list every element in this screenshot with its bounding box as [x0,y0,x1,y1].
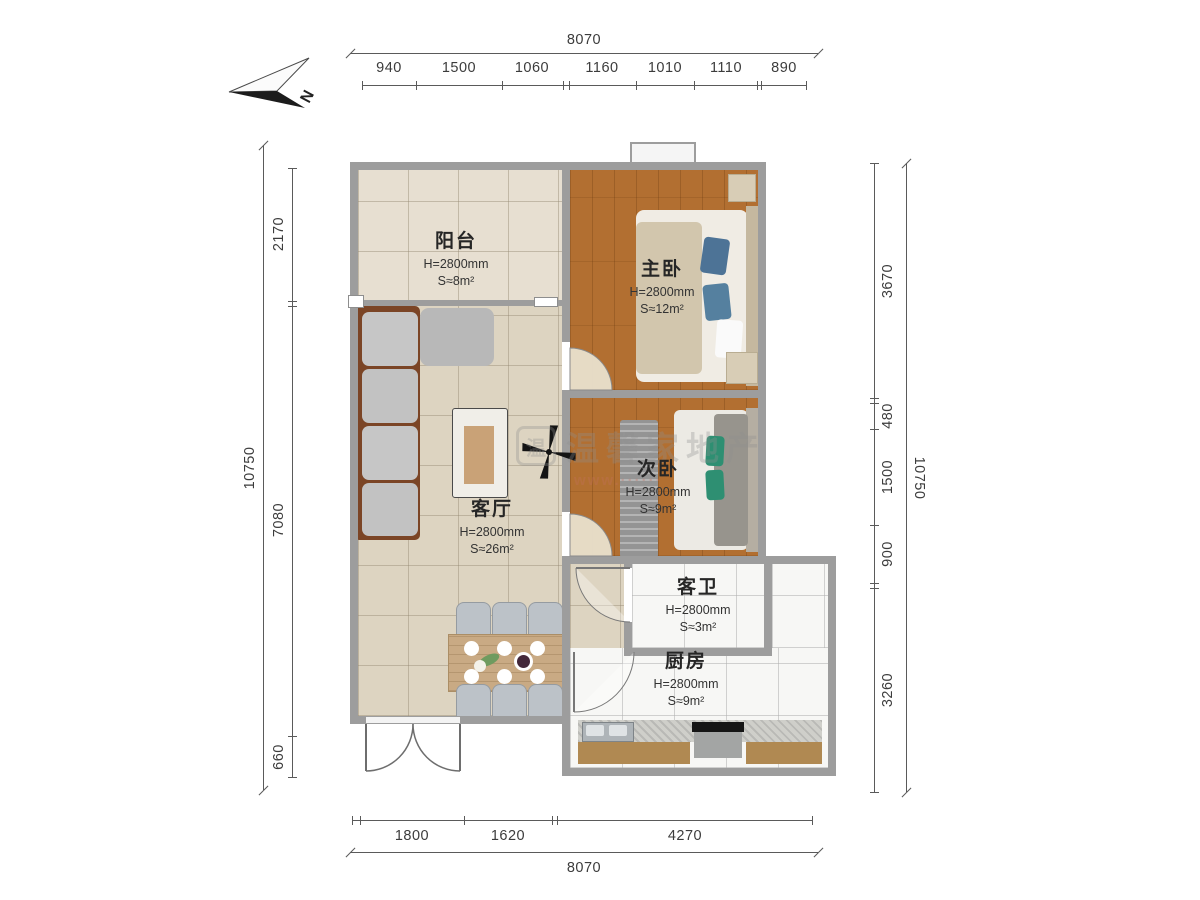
hallway-floor [570,564,624,656]
dim-bottom-seg: 1800 [395,828,429,844]
wall-middle-upper [562,170,570,342]
room-label-second: 次卧 H=2800mm S≈9m² [626,454,691,518]
plate [464,641,479,656]
dim-left-total: 10750 [242,447,258,490]
wall-left [350,162,358,724]
kitchen-cabinet [746,742,822,764]
dim-top-seg: 1160 [585,60,618,76]
wall-bath-left-a [624,564,632,568]
dim-tick [870,429,879,430]
entry-door-arc-left [366,724,413,771]
dim-tick [362,81,363,90]
dim-tick [288,736,297,737]
north-arrow-icon: N [225,42,325,117]
room-height: H=2800mm [424,256,489,273]
plate [497,641,512,656]
floor-plan-canvas: N 温 温馨家地产 www.······ 阳台 H=2800mm S≈8m² 主… [0,0,1200,900]
dim-line-top-outer [350,53,818,54]
dim-line-left-inner [292,168,293,777]
entry-door-sill [366,716,460,724]
plate [530,669,545,684]
dim-tick [464,816,465,825]
dim-top-seg: 1110 [710,60,742,76]
plate [497,669,512,684]
dim-right-seg: 3260 [880,673,896,707]
dim-tick [870,398,879,399]
sofa-cushion [362,426,418,480]
dim-left-seg: 2170 [271,217,287,251]
dim-right-seg: 480 [880,403,896,429]
wall-top [350,162,766,170]
wall-kitchen-bottom [562,768,836,776]
dim-tick [870,792,879,793]
dim-tick [416,81,417,90]
dim-top-seg: 1500 [442,60,476,76]
dim-tick [694,81,695,90]
entry-double-door [366,724,460,771]
room-height: H=2800mm [630,284,695,301]
room-area: S≈12m² [630,301,695,318]
room-area: S≈26m² [460,541,525,558]
dim-top-seg: 1010 [648,60,682,76]
dim-tick [352,816,353,825]
dim-line-bottom-inner [352,820,812,821]
sofa-chaise [420,308,494,366]
master-bed-pillow-blue [700,236,731,275]
dim-tick [870,403,879,404]
second-bed-pillow-green [705,436,725,467]
wall-master-second [570,390,758,398]
room-height: H=2800mm [666,602,731,619]
dim-tick [288,306,297,307]
dim-tick [360,816,361,825]
room-name: 阳台 [424,226,489,253]
coffee-table-tray [464,426,494,484]
wall-second-bottom [562,556,836,564]
dim-left-seg: 660 [271,744,287,770]
wall-kitchen-right [828,556,836,776]
dim-tick [502,81,503,90]
dim-bottom-total: 8070 [567,860,601,876]
wall-middle-lower [562,556,570,776]
dim-top-total: 8070 [567,32,601,48]
sofa-cushion [362,369,418,423]
wall-bath-right [764,564,772,656]
kitchen-floor-strip [772,564,828,648]
room-label-master: 主卧 H=2800mm S≈12m² [630,254,695,318]
stove-body [694,732,742,758]
stove-cooktop [692,722,744,732]
dim-tick [806,81,807,90]
dim-line-bottom-outer [350,852,818,853]
dim-right-total: 10750 [911,457,927,500]
dim-right-seg: 900 [880,541,896,567]
dim-tick [552,816,553,825]
balcony-slider-panel [534,297,558,307]
room-height: H=2800mm [654,676,719,693]
dim-line-left-outer [263,145,264,790]
wall-bedrooms-right [758,162,766,564]
dim-tick [636,81,637,90]
wall-middle-mid [562,390,570,512]
wall-bottom-living [460,716,570,724]
dim-top-seg: 890 [771,60,797,76]
wall-bath-left-b [624,622,632,648]
dim-left-seg: 7080 [271,503,287,537]
dim-tick [870,525,879,526]
room-name: 客卫 [666,572,731,599]
room-name: 次卧 [626,454,691,481]
dim-top-seg: 1060 [515,60,549,76]
sink-basin [586,725,604,736]
dim-tick [812,816,813,825]
entry-door-arc-right [413,724,460,771]
kitchen-cabinet [578,742,690,764]
dim-tick [757,81,758,90]
table-flower [474,660,486,672]
dim-top-seg: 940 [376,60,402,76]
dim-tick [870,588,879,589]
dim-tick [761,81,762,90]
sofa-cushion [362,483,418,536]
plate [530,641,545,656]
room-area: S≈3m² [666,619,731,636]
room-area: S≈9m² [654,693,719,710]
dim-line-right-outer [906,163,907,792]
room-label-kitchen: 厨房 H=2800mm S≈9m² [654,646,719,710]
dim-tick [563,81,564,90]
room-name: 主卧 [630,254,695,281]
wall-bottom-left [350,716,366,724]
master-nightstand [728,174,756,202]
fruit [517,655,530,668]
room-height: H=2800mm [626,484,691,501]
sofa-cushion [362,312,418,366]
room-area: S≈8m² [424,273,489,290]
room-label-balcony: 阳台 H=2800mm S≈8m² [424,226,489,290]
room-label-bath: 客卫 H=2800mm S≈3m² [666,572,731,636]
room-area: S≈9m² [626,501,691,518]
dim-line-top-inner [362,85,806,86]
room-height: H=2800mm [460,524,525,541]
second-bed-pillow-green [705,470,725,501]
sink-basin [609,725,627,736]
dim-tick [288,168,297,169]
dim-tick [557,816,558,825]
wall-joint-marker [348,295,364,308]
north-label: N [298,88,318,106]
dim-tick [288,777,297,778]
master-bed-pillow-blue [702,283,732,322]
dim-right-seg: 1500 [880,460,896,494]
room-name: 客厅 [460,494,525,521]
dim-bottom-seg: 4270 [668,828,702,844]
dim-tick [870,163,879,164]
dim-right-seg: 3670 [880,264,896,298]
dim-tick [288,301,297,302]
master-nightstand [726,352,758,384]
dim-bottom-seg: 1620 [491,828,525,844]
dim-line-right-inner [874,163,875,792]
room-name: 厨房 [654,646,719,673]
dim-tick [569,81,570,90]
dim-tick [870,583,879,584]
room-label-living: 客厅 H=2800mm S≈26m² [460,494,525,558]
